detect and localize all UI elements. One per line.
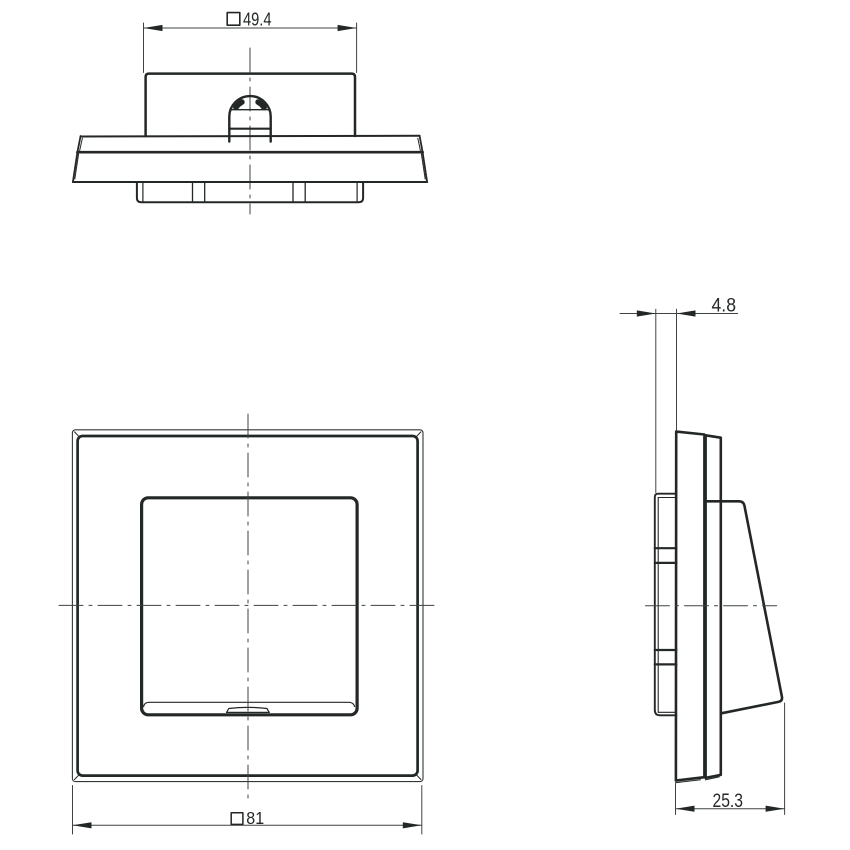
svg-text:4.8: 4.8 xyxy=(712,296,737,317)
svg-text:25.3: 25.3 xyxy=(713,791,744,812)
svg-text:49.4: 49.4 xyxy=(243,9,272,30)
svg-text:81: 81 xyxy=(246,808,264,828)
